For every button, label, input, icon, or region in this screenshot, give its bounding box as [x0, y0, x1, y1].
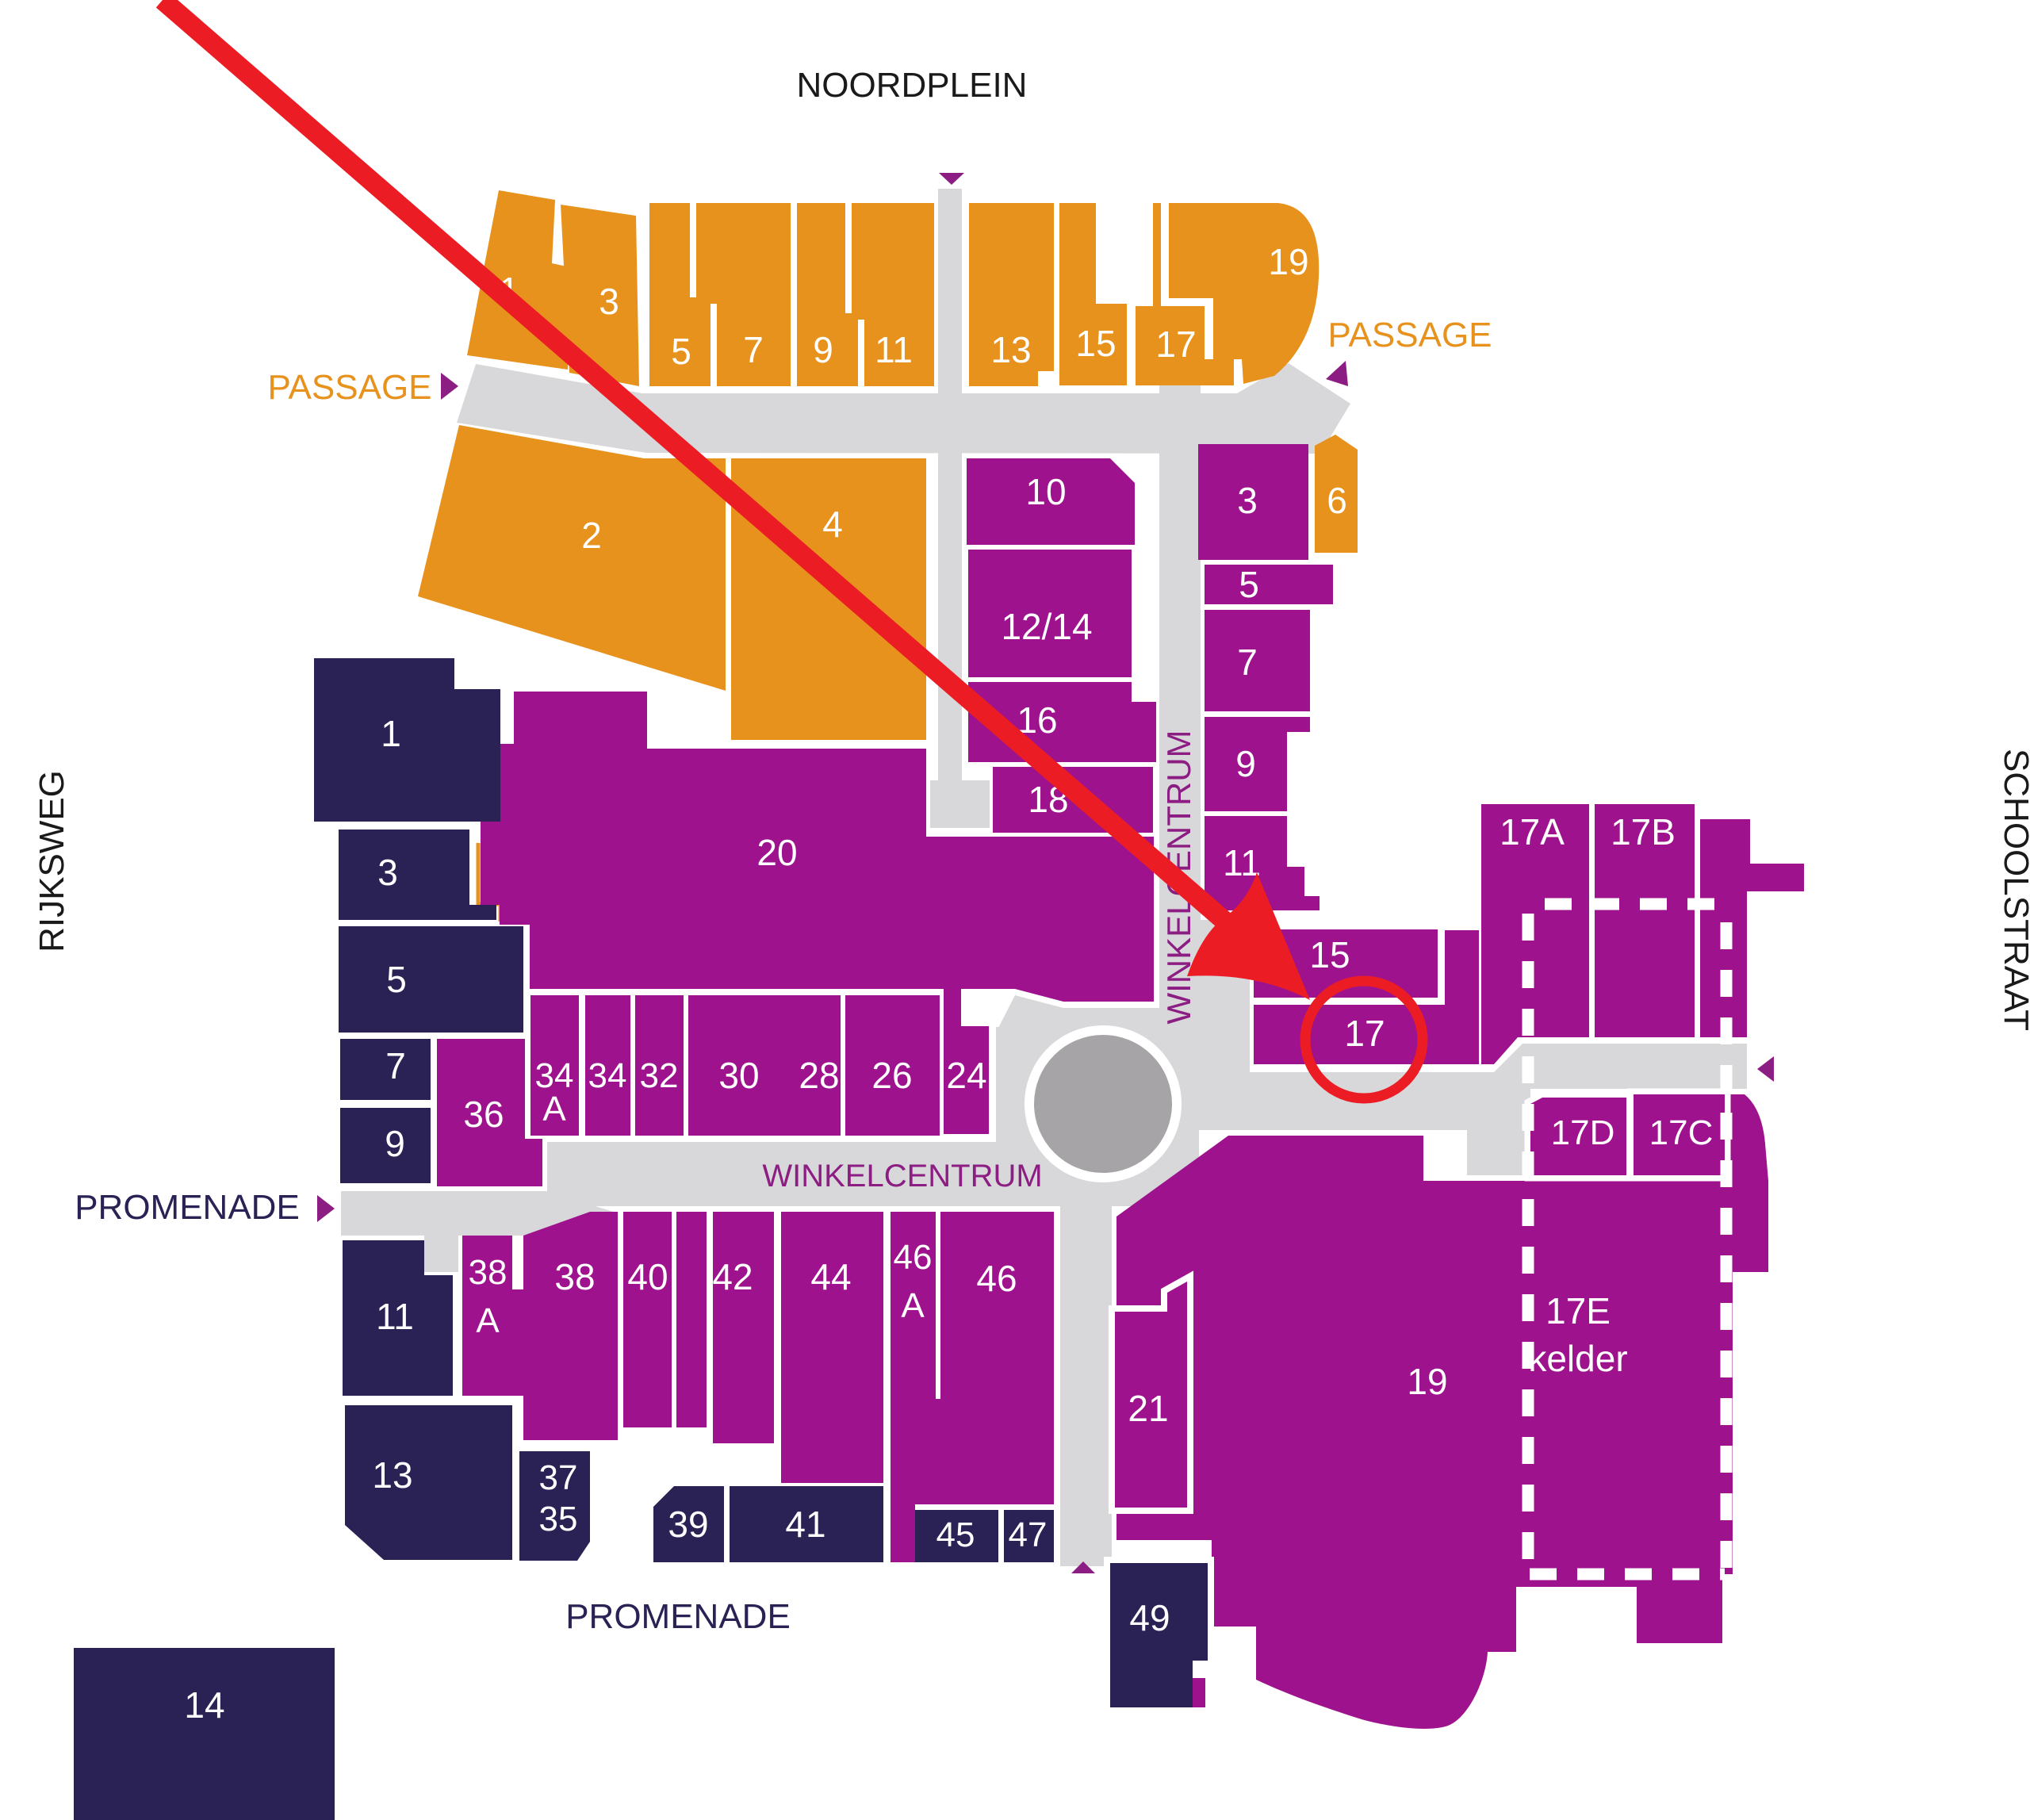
svg-text:A: A: [542, 1090, 566, 1128]
svg-text:3: 3: [377, 852, 398, 893]
svg-text:39: 39: [668, 1504, 708, 1545]
svg-text:21: 21: [1128, 1388, 1168, 1429]
svg-text:40: 40: [627, 1256, 668, 1297]
svg-text:9: 9: [385, 1123, 405, 1164]
svg-text:PASSAGE: PASSAGE: [1327, 316, 1492, 354]
svg-text:11: 11: [1223, 842, 1261, 883]
svg-text:A: A: [476, 1301, 500, 1340]
svg-text:9: 9: [1235, 743, 1256, 784]
svg-text:37: 37: [539, 1458, 578, 1497]
svg-text:PASSAGE: PASSAGE: [267, 368, 431, 407]
svg-text:47: 47: [1009, 1515, 1048, 1554]
svg-text:38: 38: [554, 1256, 595, 1297]
svg-text:17D: 17D: [1551, 1113, 1615, 1152]
svg-text:38: 38: [469, 1253, 507, 1292]
svg-text:13: 13: [990, 329, 1031, 370]
svg-text:24: 24: [946, 1055, 986, 1096]
svg-text:32: 32: [640, 1056, 679, 1095]
svg-text:3: 3: [1237, 480, 1258, 521]
svg-text:4: 4: [822, 504, 843, 545]
svg-text:20: 20: [756, 832, 797, 873]
svg-text:1: 1: [381, 713, 401, 754]
svg-text:7: 7: [385, 1045, 406, 1086]
svg-text:36: 36: [463, 1094, 504, 1135]
svg-text:17A: 17A: [1500, 811, 1565, 853]
svg-text:7: 7: [1237, 642, 1258, 683]
svg-text:NOORDPLEIN: NOORDPLEIN: [797, 66, 1028, 105]
svg-text:28: 28: [799, 1055, 839, 1096]
svg-text:13: 13: [372, 1454, 412, 1496]
svg-text:2: 2: [581, 515, 602, 556]
svg-text:17C: 17C: [1649, 1113, 1714, 1152]
svg-text:11: 11: [376, 1296, 414, 1337]
svg-text:44: 44: [810, 1256, 851, 1297]
svg-text:RIJKSWEG: RIJKSWEG: [33, 770, 71, 952]
svg-text:19: 19: [1268, 241, 1308, 282]
svg-text:kelder: kelder: [1528, 1338, 1627, 1379]
svg-text:30: 30: [718, 1055, 759, 1096]
svg-text:19: 19: [1407, 1361, 1447, 1402]
svg-text:SCHOOLSTRAAT: SCHOOLSTRAAT: [1997, 749, 2030, 1031]
svg-text:7: 7: [743, 329, 764, 370]
svg-text:42: 42: [712, 1256, 753, 1297]
svg-text:6: 6: [1327, 480, 1347, 521]
svg-text:46: 46: [894, 1238, 933, 1277]
svg-text:17: 17: [1344, 1013, 1385, 1054]
svg-text:3: 3: [599, 281, 619, 322]
svg-text:A: A: [901, 1286, 925, 1325]
svg-text:15: 15: [1075, 323, 1116, 364]
svg-text:45: 45: [936, 1515, 975, 1554]
svg-text:12/14: 12/14: [1001, 606, 1092, 647]
svg-text:17: 17: [1155, 324, 1196, 365]
svg-text:17B: 17B: [1611, 811, 1676, 853]
svg-text:WINKELCENTRUM: WINKELCENTRUM: [762, 1159, 1042, 1194]
svg-text:5: 5: [1239, 564, 1259, 605]
svg-text:5: 5: [386, 959, 407, 1000]
svg-text:17E: 17E: [1545, 1290, 1611, 1331]
svg-text:49: 49: [1129, 1597, 1170, 1638]
svg-text:9: 9: [813, 329, 833, 370]
svg-text:PROMENADE: PROMENADE: [565, 1597, 791, 1636]
svg-text:10: 10: [1025, 471, 1066, 512]
svg-text:PROMENADE: PROMENADE: [75, 1188, 300, 1227]
svg-text:26: 26: [871, 1055, 912, 1096]
svg-text:5: 5: [671, 331, 691, 372]
svg-text:15: 15: [1309, 934, 1350, 975]
svg-text:14: 14: [184, 1684, 224, 1726]
svg-text:35: 35: [539, 1500, 578, 1538]
svg-text:41: 41: [785, 1504, 825, 1545]
svg-text:46: 46: [976, 1258, 1017, 1299]
svg-text:34: 34: [588, 1056, 627, 1095]
svg-text:11: 11: [875, 329, 913, 370]
